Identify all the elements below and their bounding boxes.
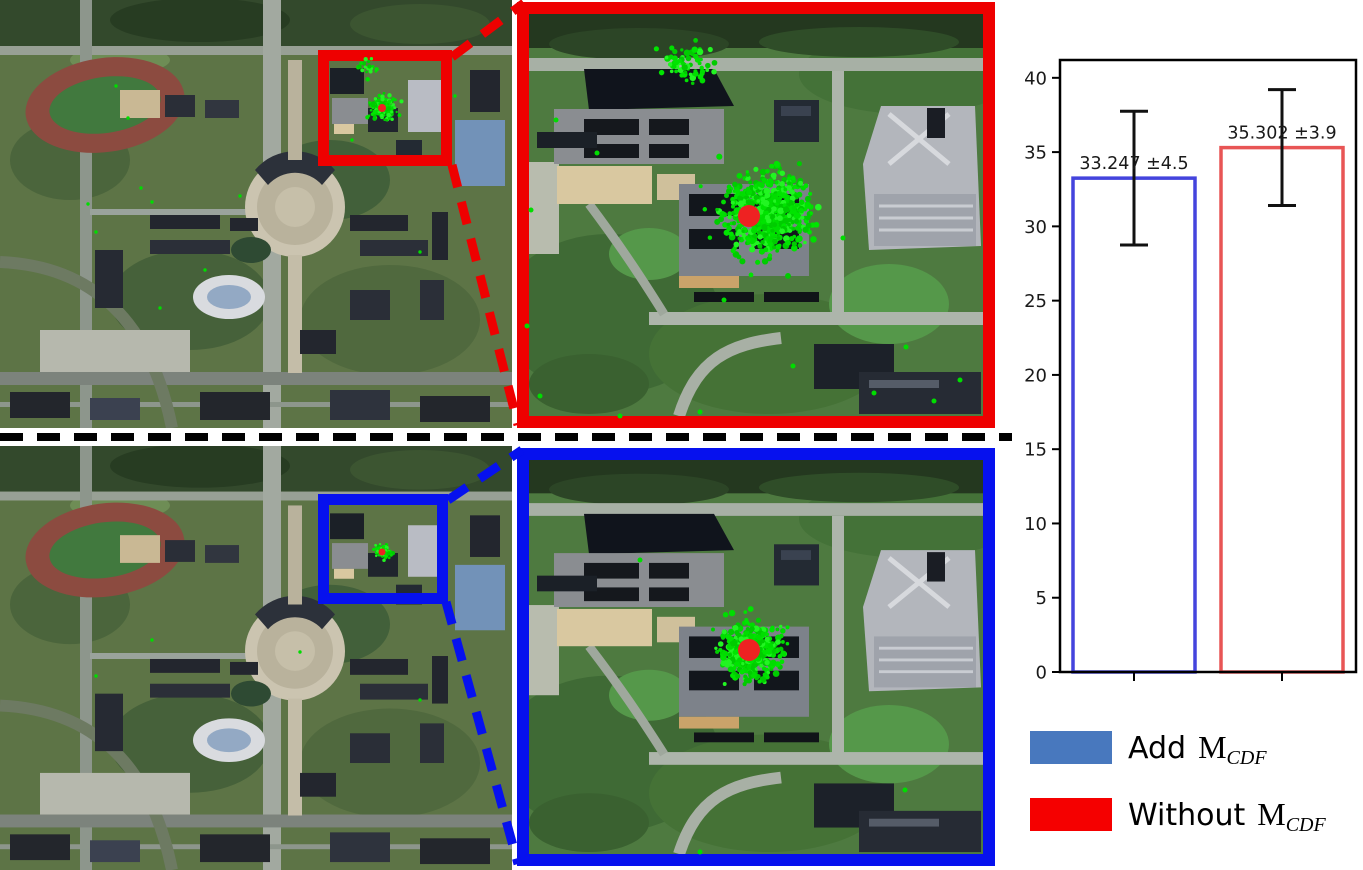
legend-add-prefix: Add xyxy=(1128,731,1186,766)
zoom-crop-art xyxy=(529,14,983,416)
y-tick-label: 35 xyxy=(1024,143,1047,164)
y-tick-label: 10 xyxy=(1024,514,1047,535)
y-tick-label: 5 xyxy=(1036,588,1047,609)
legend-without-prefix: Without xyxy=(1128,798,1245,833)
legend-row-add: AddMCDF xyxy=(1030,730,1267,764)
legend-label-add: AddMCDF xyxy=(1128,729,1267,766)
legend-swatch-add xyxy=(1030,731,1112,764)
legend-label-without: WithoutMCDF xyxy=(1128,796,1326,833)
roi-box-red xyxy=(318,50,452,166)
legend-row-without: WithoutMCDF xyxy=(1030,797,1326,831)
zoom-panel-blue xyxy=(517,448,995,866)
dashed-divider xyxy=(0,433,1012,441)
roi-box-blue xyxy=(318,494,448,604)
legend-swatch-without xyxy=(1030,798,1112,831)
y-tick-label: 25 xyxy=(1024,291,1047,312)
y-tick-label: 15 xyxy=(1024,440,1047,461)
bar-without-m-cdf xyxy=(1221,148,1343,672)
y-tick-label: 0 xyxy=(1036,663,1047,684)
legend-without-symbol: MCDF xyxy=(1257,796,1325,832)
legend-add-symbol: MCDF xyxy=(1198,729,1266,765)
zoom-crop-art xyxy=(529,460,983,854)
zoom-panel-red xyxy=(517,2,995,428)
bar-value-label: 35.302 ±3.9 xyxy=(1227,124,1336,144)
bar-value-label: 33.247 ±4.5 xyxy=(1079,154,1188,174)
y-tick-label: 20 xyxy=(1024,365,1047,386)
y-tick-label: 40 xyxy=(1024,68,1047,89)
bar-add-m-cdf xyxy=(1073,178,1195,672)
y-tick-label: 30 xyxy=(1024,217,1047,238)
plot-frame xyxy=(1060,60,1356,672)
bar-chart: 051015202530354033.247 ±4.535.302 ±3.9 xyxy=(1020,40,1363,700)
